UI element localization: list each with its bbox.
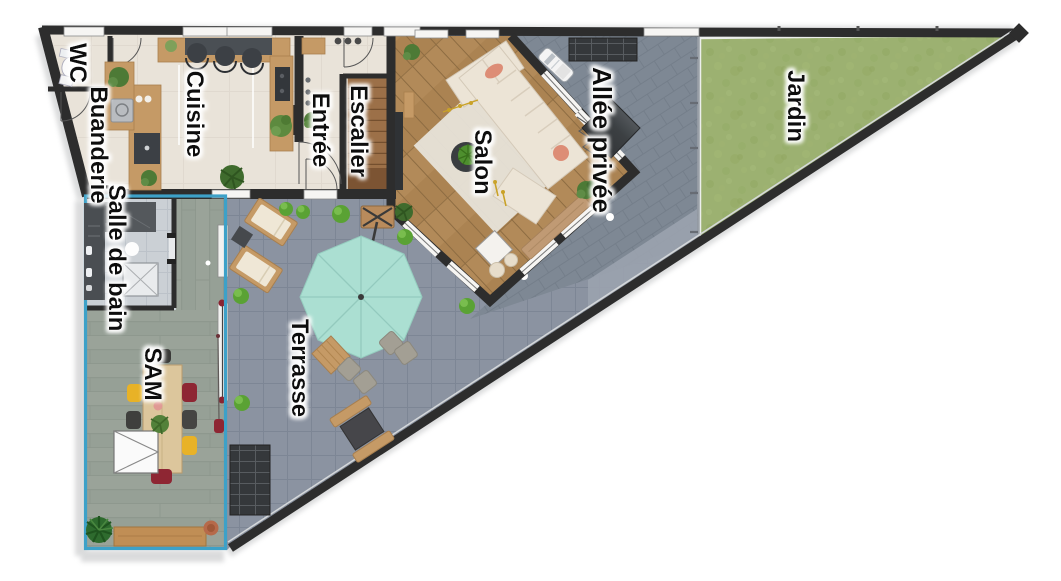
svg-text:Terrasse: Terrasse xyxy=(286,319,313,417)
svg-text:Cuisine: Cuisine xyxy=(181,71,208,158)
svg-text:Escalier: Escalier xyxy=(345,85,372,177)
svg-text:Entrée: Entrée xyxy=(307,93,334,168)
svg-text:Salon: Salon xyxy=(469,129,496,194)
svg-text:SAM: SAM xyxy=(139,347,166,400)
svg-text:WC: WC xyxy=(64,43,91,83)
svg-text:Salle de bain: Salle de bain xyxy=(103,185,130,332)
svg-text:Allée privée: Allée privée xyxy=(587,67,617,213)
svg-text:Jardin: Jardin xyxy=(782,70,809,142)
